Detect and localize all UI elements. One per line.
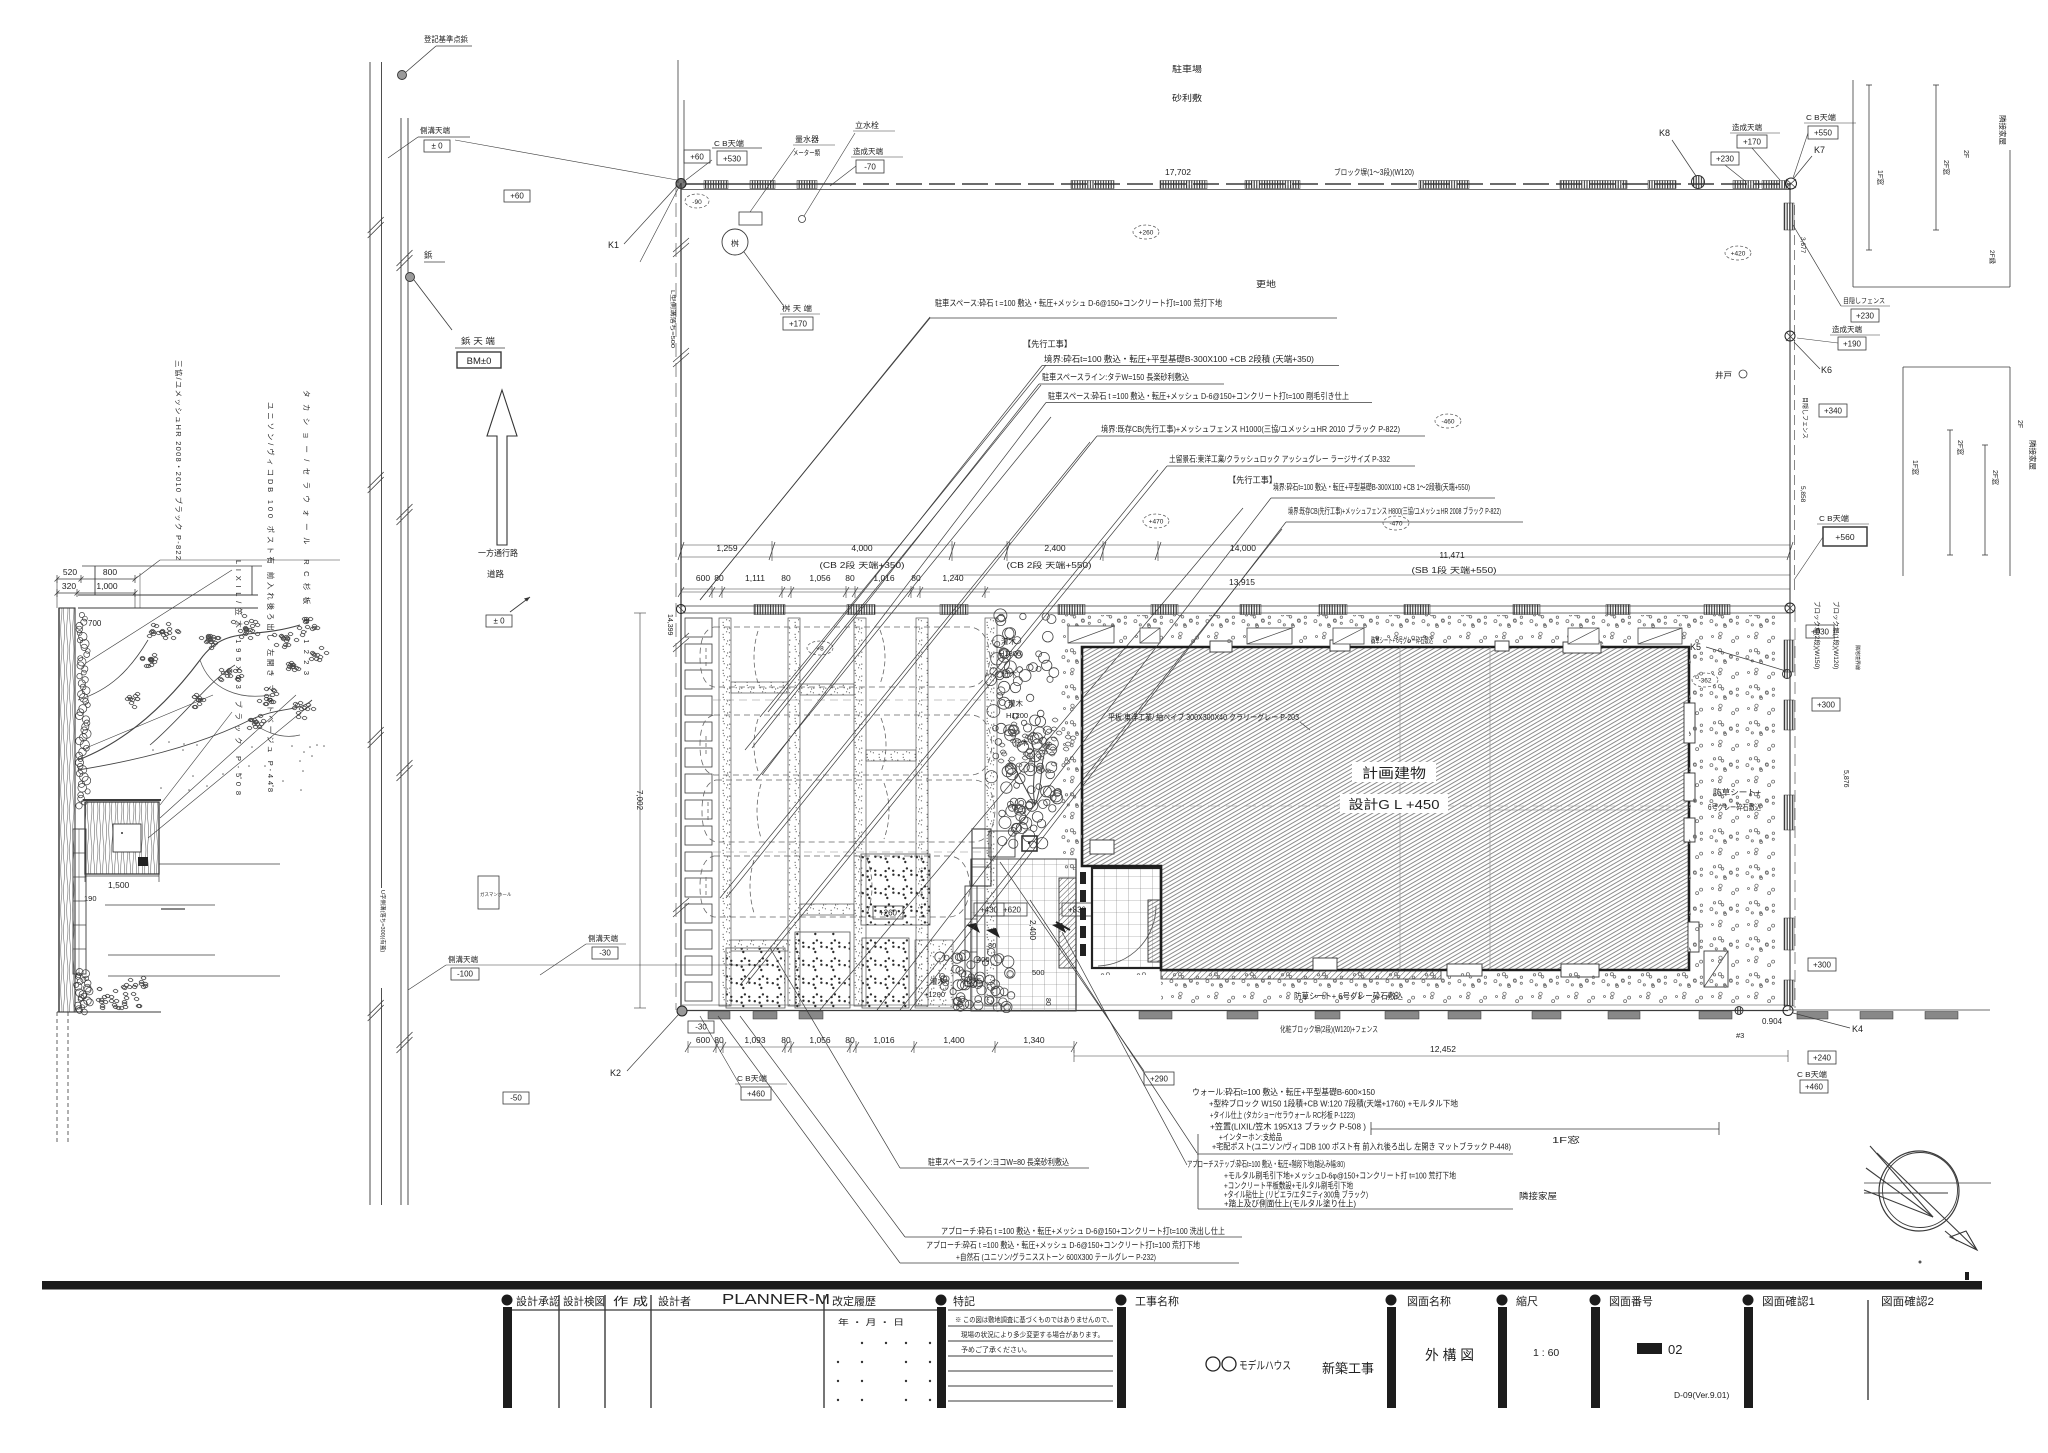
svg-text:+470: +470 — [1149, 519, 1164, 526]
svg-text:特記: 特記 — [953, 1294, 975, 1308]
svg-text:+型枠ブロック W150 1段積+CB W:120 7段積: +型枠ブロック W150 1段積+CB W:120 7段積(天端+1760) +… — [1209, 1099, 1458, 1109]
svg-text:+260: +260 — [879, 909, 898, 918]
svg-text:80: 80 — [911, 573, 921, 583]
svg-text:現場の状況により多少変更する場合があります。: 現場の状況により多少変更する場合があります。 — [961, 1330, 1104, 1339]
svg-text:鋲: 鋲 — [424, 250, 433, 260]
svg-text:2F窓: 2F窓 — [1956, 440, 1965, 455]
svg-text:側溝天端: 側溝天端 — [588, 933, 618, 943]
svg-text:設計承認: 設計承認 — [516, 1294, 560, 1308]
svg-text:+踏上及び側面仕上(モルタル塗り仕上): +踏上及び側面仕上(モルタル塗り仕上) — [1224, 1199, 1356, 1209]
svg-text:-460: -460 — [1441, 419, 1454, 426]
svg-text:190: 190 — [84, 894, 97, 903]
svg-text:桝: 桝 — [731, 238, 740, 248]
svg-text:縮尺: 縮尺 — [1516, 1294, 1538, 1308]
svg-text:【先行工事】: 【先行工事】 — [1023, 339, 1072, 349]
svg-text:4,000: 4,000 — [851, 543, 873, 553]
svg-text:80: 80 — [845, 573, 855, 583]
svg-text:400: 400 — [977, 955, 990, 964]
svg-text:K1: K1 — [608, 240, 619, 250]
svg-text:1,111: 1,111 — [745, 573, 765, 583]
svg-text:2F窓: 2F窓 — [1942, 160, 1951, 175]
svg-text:砂利敷: 砂利敷 — [1172, 93, 1203, 103]
svg-text:図面名称: 図面名称 — [1407, 1294, 1451, 1308]
svg-text:K5: K5 — [1690, 642, 1701, 652]
svg-text:1F窓: 1F窓 — [1552, 1135, 1581, 1145]
svg-text:図面確認1: 図面確認1 — [1762, 1294, 1815, 1308]
svg-text:作 成: 作 成 — [613, 1295, 648, 1308]
svg-text:02: 02 — [1668, 1342, 1682, 1357]
svg-text:520: 520 — [63, 567, 77, 577]
svg-text:アプローチ:砕石 t =100 敷込・転圧+メッシュ D: アプローチ:砕石 t =100 敷込・転圧+メッシュ D-6@150+コンクリー… — [941, 1226, 1225, 1236]
svg-text:320: 320 — [62, 581, 76, 591]
svg-text:-70: -70 — [864, 163, 876, 172]
svg-text:U字側溝(落ち=300)(有蓋): U字側溝(落ち=300)(有蓋) — [379, 890, 387, 952]
svg-text:計画建物: 計画建物 — [1362, 766, 1426, 781]
svg-text:灌木: 灌木 — [1008, 698, 1023, 708]
svg-text:#3: #3 — [1736, 1031, 1744, 1040]
svg-text:改定履歴: 改定履歴 — [832, 1294, 876, 1308]
svg-text:桝 天 端: 桝 天 端 — [782, 303, 813, 313]
svg-text:± 0: ± 0 — [431, 142, 443, 151]
svg-text:造成天端: 造成天端 — [1832, 324, 1862, 334]
svg-text:低木: 低木 — [1002, 669, 1017, 679]
svg-text:設計者: 設計者 — [658, 1294, 691, 1308]
svg-text:防草シート+ 6号グレー砕石敷込: 防草シート+ 6号グレー砕石敷込 — [1294, 991, 1403, 1001]
svg-text:ブロック塀(1〜3段)(W120): ブロック塀(1〜3段)(W120) — [1334, 167, 1414, 177]
svg-text:ガスマンホール: ガスマンホール — [480, 891, 512, 898]
svg-text:LIXIL/笠木 195X13 ブラック P-508: LIXIL/笠木 195X13 ブラック P-508 — [234, 560, 244, 795]
svg-text:500: 500 — [1032, 968, 1045, 977]
svg-text:1,016: 1,016 — [873, 1035, 895, 1045]
svg-text:+60: +60 — [690, 153, 704, 162]
svg-text:境界:既存CB(先行工事)+メッシュフェンス H800(三: 境界:既存CB(先行工事)+メッシュフェンス H800(三協/ユメッシュHR 2… — [1288, 506, 1501, 516]
svg-text:+170: +170 — [1743, 138, 1762, 147]
svg-text:C B天端: C B天端 — [1819, 513, 1850, 523]
svg-text:+190: +190 — [1843, 340, 1862, 349]
svg-text:PLANNER-M: PLANNER-M — [722, 1291, 830, 1308]
svg-text:鋲 天 端: 鋲 天 端 — [461, 336, 496, 346]
svg-text:1,259: 1,259 — [716, 543, 738, 553]
svg-text:一方通行路: 一方通行路 — [478, 548, 518, 558]
svg-text:造成天端: 造成天端 — [1732, 122, 1762, 132]
svg-text:80: 80 — [781, 1035, 791, 1045]
svg-text:低木: 低木 — [1014, 738, 1028, 747]
svg-text:防草シート+ 6号グレー砕石敷込: 防草シート+ 6号グレー砕石敷込 — [1371, 635, 1433, 645]
svg-text:化粧ブロック塀(2段)(W120)+フェンス: 化粧ブロック塀(2段)(W120)+フェンス — [1280, 1024, 1378, 1034]
svg-text:-470: -470 — [1389, 521, 1402, 528]
svg-text:平板:東洋工業/ 紬ペイブ 300X300X40 クラリーグ: 平板:東洋工業/ 紬ペイブ 300X300X40 クラリーグレー P-203 — [1108, 712, 1299, 722]
svg-text:図面番号: 図面番号 — [1609, 1295, 1653, 1308]
svg-text:-90: -90 — [692, 199, 702, 206]
svg-text:17,702: 17,702 — [1165, 167, 1191, 177]
svg-text:600: 600 — [696, 1035, 710, 1045]
svg-text:C B天端: C B天端 — [1806, 112, 1837, 122]
svg-text:+170: +170 — [789, 320, 808, 329]
svg-text:-50: -50 — [510, 1094, 522, 1103]
svg-text:K8: K8 — [1659, 128, 1670, 138]
svg-text:C B天端: C B天端 — [1797, 1069, 1828, 1079]
svg-text:11,471: 11,471 — [1439, 550, 1465, 560]
svg-text:隣地境界線: 隣地境界線 — [1854, 645, 1861, 670]
svg-text:1,056: 1,056 — [809, 1035, 831, 1045]
svg-text:1,500: 1,500 — [108, 880, 130, 890]
svg-text:+モルタル刷毛引下地+メッシュD-6φ@150+コンクリート: +モルタル刷毛引下地+メッシュD-6φ@150+コンクリート打 t=100 荒打… — [1224, 1171, 1456, 1181]
svg-text:-30: -30 — [695, 1023, 707, 1032]
svg-text:+300: +300 — [1813, 961, 1832, 970]
svg-text:700: 700 — [88, 619, 102, 628]
svg-text:2,400: 2,400 — [1044, 543, 1066, 553]
svg-text:80: 80 — [781, 573, 791, 583]
svg-text:境界:砕石t=100 敷込・転圧+平型基礎B-300X10: 境界:砕石t=100 敷込・転圧+平型基礎B-300X100 +CB 2段積 (… — [1044, 354, 1314, 364]
svg-text:※ この図は敷地調査に基づくものではありませんので、: ※ この図は敷地調査に基づくものではありませんので、 — [955, 1315, 1113, 1324]
svg-text:(SB 1段 天端+550): (SB 1段 天端+550) — [1412, 565, 1497, 575]
svg-text:側溝天端: 側溝天端 — [420, 125, 450, 135]
svg-text:80: 80 — [714, 573, 724, 583]
svg-text:K6: K6 — [1821, 365, 1832, 375]
svg-text:+1200: +1200 — [924, 990, 945, 999]
svg-text:(CB 2段 天端+550): (CB 2段 天端+550) — [1007, 560, 1092, 570]
svg-text:灌木: 灌木 — [1001, 636, 1016, 646]
svg-text:立水栓: 立水栓 — [855, 120, 879, 130]
svg-text:+550: +550 — [1814, 129, 1833, 138]
svg-text:三協/ユメッシュHR 2008・2010 ブラック P-: 三協/ユメッシュHR 2008・2010 ブラック P-822 — [174, 360, 184, 560]
svg-text:ウォール:砕石t=100 敷込・転圧+平型基礎B-600×: ウォール:砕石t=100 敷込・転圧+平型基礎B-600×150 — [1192, 1087, 1375, 1097]
svg-text:1,240: 1,240 — [942, 573, 964, 583]
svg-text:1F窓: 1F窓 — [1876, 170, 1885, 185]
svg-text:+460: +460 — [1805, 1083, 1824, 1092]
svg-text:+240: +240 — [1813, 1054, 1832, 1063]
svg-text:C B天端: C B天端 — [737, 1073, 768, 1083]
svg-text:6号グレー砕石敷込: 6号グレー砕石敷込 — [1708, 802, 1761, 812]
svg-text:+タイル仕上 (タカショー/セラウォール RC杉板 P-: +タイル仕上 (タカショー/セラウォール RC杉板 P-1223) — [1210, 1110, 1355, 1120]
svg-text:モデルハウス: モデルハウス — [1239, 1358, 1291, 1372]
svg-text:D-09(Ver.9.01): D-09(Ver.9.01) — [1674, 1390, 1729, 1400]
svg-text:隣接家屋: 隣接家屋 — [1998, 115, 2008, 145]
svg-text:+300: +300 — [1817, 701, 1836, 710]
svg-text:80: 80 — [1044, 998, 1051, 1006]
svg-text:年 ・ 月 ・ 日: 年 ・ 月 ・ 日 — [838, 1317, 904, 1327]
svg-text:+620: +620 — [1003, 906, 1022, 915]
svg-text:12,452: 12,452 — [1430, 1044, 1456, 1054]
svg-text:境界:砕石t=100 敷込・転圧+平型基礎B-300X10: 境界:砕石t=100 敷込・転圧+平型基礎B-300X100 +CB 1〜2段積… — [1273, 482, 1470, 492]
svg-text:-30: -30 — [599, 949, 611, 958]
svg-text:5,876: 5,876 — [1842, 770, 1849, 788]
svg-text:更地: 更地 — [1256, 279, 1277, 289]
svg-text:+230: +230 — [1716, 155, 1735, 164]
svg-text:メーター類: メーター類 — [793, 148, 820, 157]
svg-text:隣接家屋: 隣接家屋 — [1519, 1191, 1558, 1201]
svg-text:+インターホン:支給品: +インターホン:支給品 — [1219, 1132, 1282, 1142]
svg-text:土留景石:東洋工業/クラッシュロック アッシュグレー ラージ: 土留景石:東洋工業/クラッシュロック アッシュグレー ラージサイズ P-332 — [1169, 454, 1390, 464]
svg-text:図面確認2: 図面確認2 — [1881, 1294, 1934, 1308]
svg-text:5,858: 5,858 — [1799, 486, 1806, 503]
svg-text:80: 80 — [988, 941, 996, 950]
svg-text:800: 800 — [103, 567, 117, 577]
svg-text:2F: 2F — [1962, 150, 1969, 158]
svg-text:L型側溝落ち=500: L型側溝落ち=500 — [669, 290, 677, 348]
svg-text:+290: +290 — [1150, 1075, 1169, 1084]
svg-text:BM±0: BM±0 — [467, 356, 492, 367]
svg-text:+260: +260 — [1139, 230, 1154, 237]
svg-text:1F窓: 1F窓 — [1911, 460, 1920, 475]
svg-text:K2: K2 — [610, 1068, 621, 1078]
svg-text:+530: +530 — [723, 155, 742, 164]
svg-text:2F: 2F — [2016, 420, 2023, 428]
svg-text:境界:既存CB(先行工事)+メッシュフェンス H1000(: 境界:既存CB(先行工事)+メッシュフェンス H1000(三協/ユメッシュHR … — [1101, 424, 1400, 434]
svg-text:駐車場: 駐車場 — [1172, 64, 1203, 74]
svg-text:+60: +60 — [510, 192, 524, 201]
svg-text:ブロック塀(2段)(W150): ブロック塀(2段)(W150) — [1813, 601, 1822, 669]
svg-text:1,056: 1,056 — [809, 573, 831, 583]
svg-text:アプローチステップ:砕石t=100 敷込・転圧+階段下地(: アプローチステップ:砕石t=100 敷込・転圧+階段下地(踏込み幅:80) — [1187, 1159, 1345, 1169]
svg-text:目隠しフェンス: 目隠しフェンス — [1801, 397, 1809, 439]
svg-text:新築工事: 新築工事 — [1322, 1361, 1374, 1376]
svg-text:2F窓: 2F窓 — [1991, 470, 2000, 485]
svg-text:アプローチ:砕石 t =100 敷込・転圧+メッシュ D: アプローチ:砕石 t =100 敷込・転圧+メッシュ D-6@150+コンクリー… — [926, 1240, 1200, 1250]
svg-text:+自然石 (ユニソン/グラニスストーン 600X300: +自然石 (ユニソン/グラニスストーン 600X300 テールグレー P-232… — [956, 1252, 1156, 1262]
svg-text:+340: +340 — [1824, 407, 1843, 416]
svg-text:目隠しフェンス: 目隠しフェンス — [1843, 296, 1885, 305]
svg-text:K4: K4 — [1852, 1024, 1863, 1034]
svg-text:予めご了承ください。: 予めご了承ください。 — [961, 1345, 1031, 1354]
svg-text:+560: +560 — [1835, 532, 1854, 542]
svg-text:側溝天端: 側溝天端 — [448, 954, 478, 964]
svg-text:1,000: 1,000 — [96, 581, 118, 591]
svg-text:+460: +460 — [747, 1090, 766, 1099]
svg-text:量水器: 量水器 — [795, 134, 819, 144]
svg-text:H1800: H1800 — [999, 649, 1021, 658]
svg-text:1,340: 1,340 — [1023, 1035, 1045, 1045]
svg-text:駐車スペース:砕石 t =100 敷込・転圧+メッシュ: 駐車スペース:砕石 t =100 敷込・転圧+メッシュ D-6@150+コンクリ… — [935, 298, 1222, 308]
svg-text:600: 600 — [696, 573, 710, 583]
svg-text:造成天端: 造成天端 — [853, 146, 883, 156]
svg-text:± 0: ± 0 — [493, 617, 505, 626]
svg-text:14,000: 14,000 — [1230, 543, 1256, 553]
svg-text:7,002: 7,002 — [635, 790, 644, 811]
svg-text:駐車スペースライン:タテW=150 長楽砂利敷込: 駐車スペースライン:タテW=150 長楽砂利敷込 — [1042, 372, 1189, 382]
svg-text:井戸: 井戸 — [1715, 370, 1732, 380]
svg-text:防草シート+: 防草シート+ — [1713, 787, 1761, 797]
svg-text:H1200: H1200 — [1006, 711, 1028, 720]
svg-text:1,400: 1,400 — [943, 1035, 965, 1045]
svg-text:K7: K7 — [1814, 145, 1825, 155]
svg-text:【先行工事】: 【先行工事】 — [1228, 475, 1277, 485]
svg-text:C B天端: C B天端 — [714, 138, 745, 148]
svg-text:2,400: 2,400 — [1028, 920, 1037, 941]
svg-text:設計検図: 設計検図 — [563, 1294, 605, 1308]
svg-text:+宅配ポスト(ユニソン/ヴィコDB 100 ポスト有 前: +宅配ポスト(ユニソン/ヴィコDB 100 ポスト有 前入れ後ろ出し 左開き マ… — [1212, 1142, 1511, 1152]
svg-text:3,677: 3,677 — [1799, 237, 1806, 254]
svg-text:14,399: 14,399 — [666, 614, 673, 636]
svg-text:設計G L +450: 設計G L +450 — [1349, 797, 1440, 812]
svg-text:隣接家屋: 隣接家屋 — [2028, 440, 2038, 470]
svg-text:+笠置(LIXIL/笠木 195X13 ブラック P-: +笠置(LIXIL/笠木 195X13 ブラック P-508 ) — [1210, 1122, 1366, 1132]
svg-text:駐車スペースライン:ヨコW=80 長楽砂利敷込: 駐車スペースライン:ヨコW=80 長楽砂利敷込 — [928, 1157, 1069, 1167]
svg-text:登記基準点鋲: 登記基準点鋲 — [424, 34, 468, 44]
svg-text:-100: -100 — [457, 970, 474, 979]
svg-text:駐車スペース:砕石 t =100 敷込・転圧+メッシュ: 駐車スペース:砕石 t =100 敷込・転圧+メッシュ D-6@150+コンクリ… — [1048, 391, 1349, 401]
svg-text:1 : 60: 1 : 60 — [1533, 1347, 1559, 1359]
svg-text:0.904: 0.904 — [1762, 1017, 1783, 1026]
svg-text:工事名称: 工事名称 — [1135, 1294, 1179, 1308]
svg-text:道路: 道路 — [487, 569, 504, 579]
svg-text:+230: +230 — [1856, 312, 1875, 321]
svg-text:2F縁: 2F縁 — [1988, 250, 1997, 265]
svg-text:ブロック塀(1段)(W120): ブロック塀(1段)(W120) — [1832, 601, 1841, 669]
svg-text:+420: +420 — [1731, 251, 1746, 258]
svg-text:外 構 図: 外 構 図 — [1425, 1347, 1474, 1363]
